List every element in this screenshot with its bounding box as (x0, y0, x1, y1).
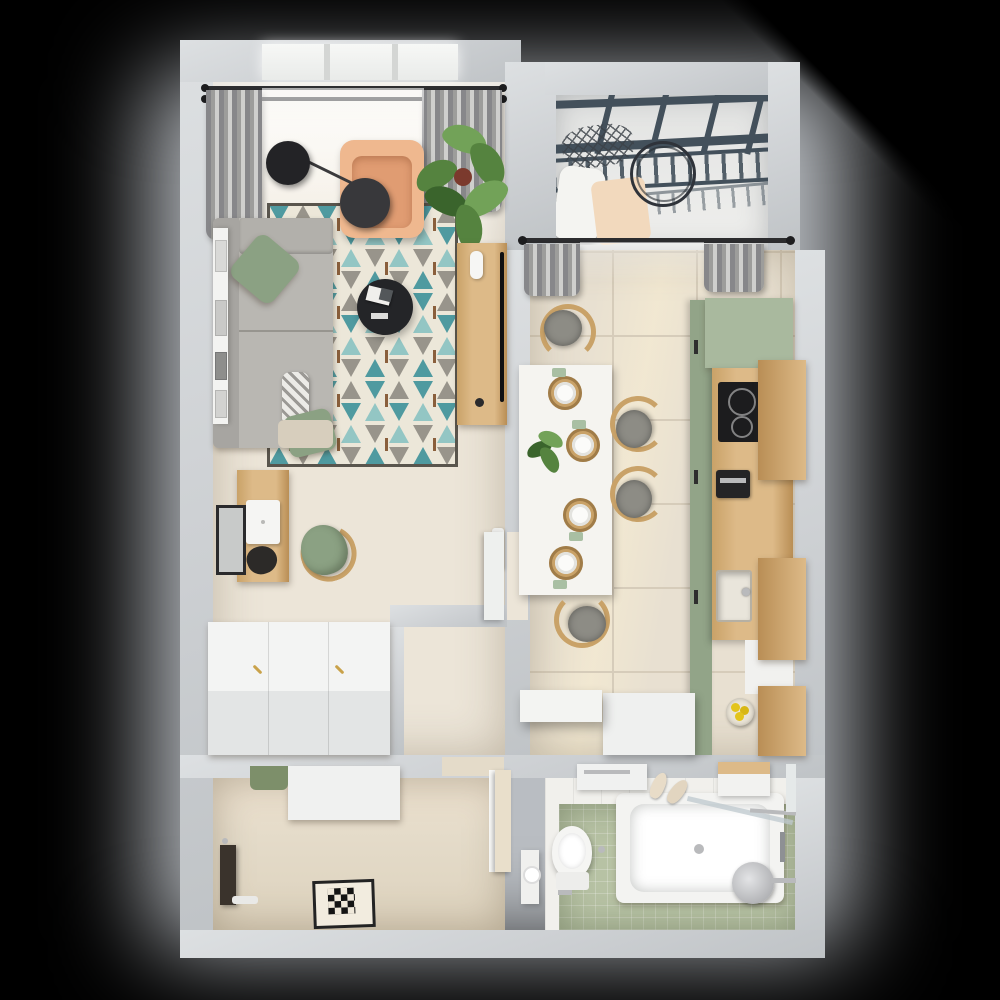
centerpiece-plant (526, 430, 568, 476)
dining-chair-seat (616, 410, 652, 448)
cabinet-handle (694, 470, 698, 484)
picture-frame (215, 240, 227, 272)
kitchen-rod-finial (786, 236, 795, 245)
living-window-mullion (324, 44, 330, 80)
dining-chair (554, 592, 614, 652)
cabinet-handle (694, 340, 698, 354)
sink-faucet (742, 588, 750, 596)
green-cabinet-fronts (690, 300, 712, 755)
shower-head (732, 862, 774, 904)
toilet-tank (556, 872, 589, 890)
mirror-strip (786, 764, 796, 812)
console-knob (475, 398, 484, 407)
round-hoop-inner (636, 146, 692, 202)
napkin (553, 580, 567, 589)
kitchen-sink (716, 570, 752, 622)
open-door-kitchen (484, 532, 504, 620)
potted-plant (412, 122, 512, 247)
napkin (572, 420, 586, 429)
wall-bottom (180, 930, 825, 958)
centerpiece-leaf (537, 444, 564, 476)
dining-chair (536, 300, 596, 360)
wall-mirror (216, 505, 246, 575)
living-window (262, 44, 458, 80)
balcony-glazing (556, 95, 768, 245)
coffee-machine-chrome (720, 478, 746, 483)
shower-cabinet (288, 766, 400, 820)
bath-floor-drain (558, 890, 572, 895)
wall-balcony-right (768, 62, 800, 250)
cabinet-handle (694, 590, 698, 604)
shower-arm (770, 878, 796, 883)
lemon (735, 712, 744, 721)
dining-chair-seat (568, 606, 606, 642)
sofa-chaise-cushion (278, 420, 333, 448)
floor-drain-grate (328, 888, 356, 915)
picture-frame (215, 390, 227, 418)
napkin (569, 532, 583, 541)
dining-chair-seat (616, 480, 652, 518)
plate (555, 552, 577, 574)
place-setting (549, 546, 583, 580)
pendant-lamp (340, 178, 390, 228)
plant-pot (454, 168, 472, 186)
bath-wall-cabinet-shelf (718, 762, 770, 774)
soap-tray (232, 896, 258, 904)
wardrobe (208, 622, 390, 755)
tp-roll (523, 866, 541, 884)
washer-chrome (584, 770, 630, 774)
wall-balcony-top (545, 62, 800, 95)
plate (554, 382, 576, 404)
kitchen-curtain-left (524, 244, 580, 296)
pendant-lamp (266, 141, 310, 185)
wall-entry-vertical (390, 627, 404, 755)
place-setting (548, 376, 582, 410)
toilet-seat (558, 833, 586, 869)
coffee-machine (716, 470, 750, 498)
floor-tap (598, 846, 605, 853)
dining-chair (606, 396, 666, 456)
picture-frame (215, 352, 227, 380)
burner (731, 416, 753, 438)
dining-chair (606, 466, 666, 526)
tv-device (470, 251, 483, 279)
kitchen-curtain-right (704, 244, 764, 292)
bathtub-drain (694, 844, 704, 854)
kitchen-sheer (580, 242, 704, 282)
green-towel (250, 766, 288, 790)
wardrobe-seam (268, 622, 269, 755)
shower-tap (222, 838, 228, 844)
dining-chair-seat (544, 310, 582, 346)
living-window-mullion (392, 44, 398, 80)
washer-top (577, 764, 647, 790)
lemon (731, 703, 740, 712)
wall-bathroom-right (795, 775, 825, 955)
green-tall-cabinet (705, 298, 793, 368)
laptop-logo (261, 520, 265, 524)
burner (728, 388, 756, 416)
wood-wall-cabinet (758, 360, 806, 480)
wood-wall-cabinet (758, 558, 806, 660)
shower-column (780, 832, 785, 862)
floor-plan-scene (0, 0, 1000, 1000)
coffee-table (357, 279, 413, 335)
plate (569, 504, 591, 526)
place-setting (566, 428, 600, 462)
white-island (603, 693, 695, 755)
floating-shelf (520, 690, 602, 722)
sofa-seat-seam (239, 330, 333, 332)
wood-wall-cabinet (758, 686, 806, 756)
napkin (552, 368, 566, 377)
plate (572, 434, 594, 456)
tv (500, 252, 504, 402)
wardrobe-seam (328, 622, 329, 755)
open-door-shower-leaf (495, 770, 511, 872)
picture-frame (215, 300, 227, 336)
place-setting (563, 498, 597, 532)
coffee-table-remote (371, 313, 388, 319)
